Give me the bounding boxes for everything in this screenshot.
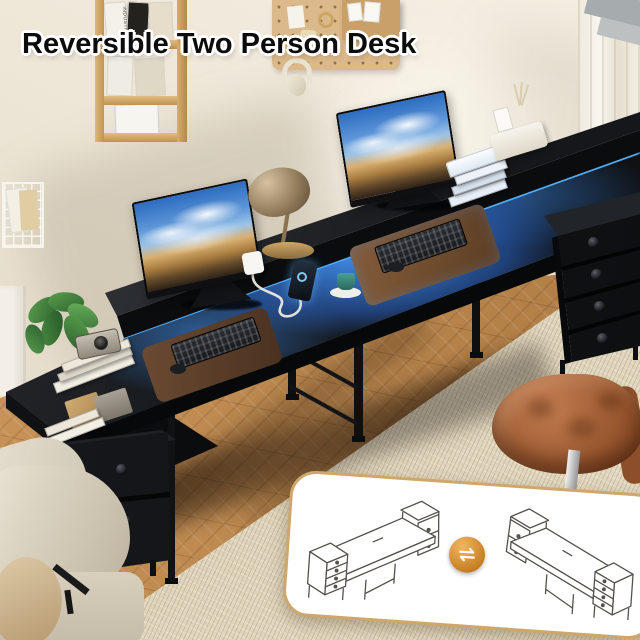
- drawer-knob: [594, 301, 605, 312]
- baseboard: [0, 286, 26, 398]
- teal-cup: [337, 273, 355, 290]
- dresser-leg: [560, 360, 565, 374]
- seat-tuft: [568, 418, 596, 438]
- dresser-leg: [150, 560, 156, 576]
- wall-magazine-rack: INDUSTRY: [93, 0, 189, 142]
- drawer-knob: [597, 333, 608, 344]
- lamp-base: [262, 242, 314, 259]
- drawer-knob: [591, 269, 602, 280]
- drawer-knob: [116, 464, 127, 475]
- power-adapter: [241, 250, 265, 275]
- office-chair-seat: [492, 374, 640, 474]
- drawer-knob: [588, 237, 599, 248]
- config-drawing-left: [307, 494, 442, 607]
- rack-rail: [95, 0, 104, 142]
- dresser-leg: [633, 346, 638, 360]
- reversible-config-inset: [281, 469, 640, 640]
- page-title: Reversible Two Person Desk: [22, 28, 502, 61]
- magazine: [106, 56, 133, 97]
- magazine: [134, 57, 166, 97]
- pinned-note: [347, 2, 363, 22]
- product-photo-two-person-desk: INDUSTRY Reversible Two Person Desk: [0, 0, 640, 640]
- rack-rail: [177, 0, 187, 142]
- desk-foot: [352, 436, 365, 442]
- basket-papers: [19, 190, 39, 231]
- right-mouse: [388, 262, 404, 272]
- pinned-note: [363, 1, 381, 22]
- phone-glow-ring: [297, 272, 307, 282]
- seat-tuft: [528, 398, 554, 418]
- rack-bar: [95, 96, 187, 105]
- seat-tuft: [598, 392, 622, 410]
- pegboard-hook: [318, 12, 334, 28]
- camera-lens: [94, 336, 108, 350]
- pegboard-card: [287, 5, 305, 29]
- rack-bar: [95, 133, 187, 142]
- config-drawing-right: [502, 507, 637, 620]
- left-mouse: [170, 364, 186, 374]
- desk-foot: [165, 578, 178, 584]
- desk-foot: [470, 352, 483, 358]
- desk-foot: [286, 394, 299, 400]
